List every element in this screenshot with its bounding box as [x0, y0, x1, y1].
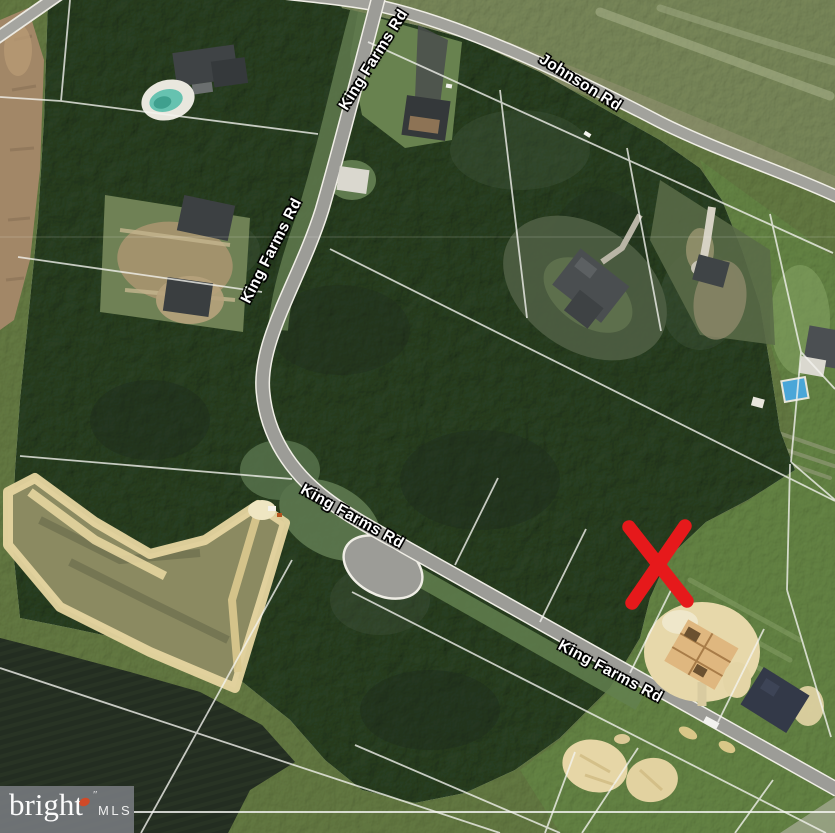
brightmls-logo-text: bright: [9, 787, 83, 823]
brightmls-logo-mls-text: MLS: [98, 803, 132, 818]
swimming-pool: [780, 376, 810, 403]
watermark-rule-line: [134, 811, 835, 813]
house-roof: [401, 95, 450, 141]
brightmls-logo-marks: ″: [93, 789, 99, 801]
map-canvas: [0, 0, 835, 833]
aerial-map-photo: King Farms RdKing Farms RdKing Farms RdK…: [0, 0, 835, 833]
shed-roof: [336, 166, 369, 194]
house-roof: [163, 277, 213, 317]
brightmls-watermark: bright ″ MLS: [0, 786, 134, 833]
